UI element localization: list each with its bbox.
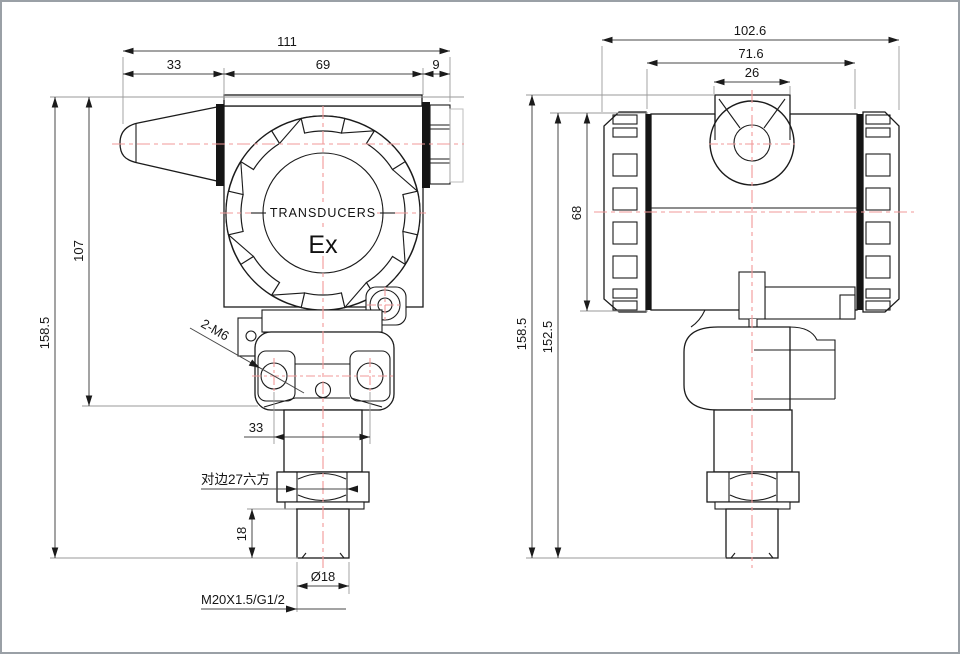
dim-front-overall-width: 111: [277, 34, 297, 49]
engineering-drawing: TRANSDUCERS Ex 158.5 107 111: [2, 2, 958, 652]
side-neck: [714, 410, 792, 472]
drawing-sheet: TRANSDUCERS Ex 158.5 107 111: [0, 0, 960, 654]
dim-front-body-height: 107: [71, 240, 86, 262]
flange: [285, 502, 364, 509]
dim-side-overall-height: 158.5: [514, 318, 529, 351]
dim-side-height-below-boss: 152.5: [540, 321, 555, 354]
dim-front-gland-width: 33: [167, 57, 181, 72]
dim-front-connector-width: 9: [432, 57, 439, 72]
connector-band: [422, 102, 430, 188]
dim-thread-length: 18: [234, 527, 249, 541]
connector-phantom-outline: [450, 109, 463, 182]
dim-side-conduit-boss-width: 26: [745, 65, 759, 80]
bracket-adapter: [262, 310, 382, 332]
ex-marking: Ex: [308, 231, 338, 259]
dim-side-overall-width: 102.6: [734, 23, 767, 38]
dim-side-cap-height: 68: [569, 206, 584, 220]
note-mounting-holes: 2-M6: [199, 316, 232, 344]
dim-side-body-width: 71.6: [738, 46, 763, 61]
note-hex-across-flats: 对边27六方: [201, 472, 270, 487]
dim-hole-spacing: 33: [249, 420, 263, 435]
dim-tip-diameter: Ø18: [311, 569, 336, 584]
dim-front-overall-height: 158.5: [37, 317, 52, 350]
front-view: TRANSDUCERS Ex 158.5 107 111: [37, 34, 464, 613]
side-hex-nut: [707, 472, 799, 502]
note-thread-spec: M20X1.5/G1/2: [201, 592, 285, 607]
side-bracket: [684, 327, 790, 410]
dim-front-body-width: 69: [316, 57, 330, 72]
gland-nut-band: [216, 104, 224, 186]
cover-brand-text: TRANSDUCERS: [270, 206, 376, 220]
side-view: 158.5 152.5 68 102.6 71.6 26: [514, 23, 914, 568]
